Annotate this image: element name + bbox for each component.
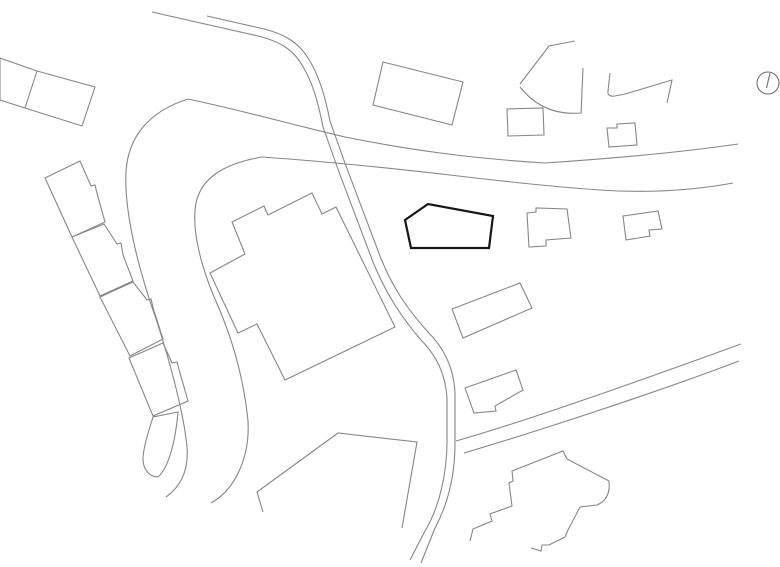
context-buildings-path [470, 451, 609, 551]
main-road [126, 99, 738, 503]
north-arrow-icon [757, 72, 779, 94]
context-buildings-path [520, 87, 580, 113]
context-buildings-path [520, 41, 575, 84]
context-buildings-path [129, 343, 188, 416]
context-buildings [0, 41, 672, 551]
main-road-path [188, 99, 738, 163]
context-buildings-path [72, 224, 133, 296]
context-buildings-path [607, 123, 637, 147]
footpath-path [152, 12, 447, 560]
site-plan-page [0, 0, 780, 567]
main-road-path [195, 157, 262, 503]
context-buildings-path [581, 68, 583, 114]
footpath-path [456, 344, 741, 441]
context-buildings-path [0, 58, 95, 126]
main-road-path [126, 99, 188, 497]
context-buildings-path [623, 211, 662, 240]
footpath [152, 12, 741, 563]
context-buildings-path [608, 73, 672, 103]
context-buildings-path [452, 283, 532, 338]
parcel-boundary-path [257, 433, 417, 528]
context-buildings-path [25, 71, 37, 108]
context-buildings-path [373, 62, 463, 125]
project-building [405, 204, 493, 248]
project-building-path [405, 204, 493, 248]
footpath-path [207, 16, 455, 563]
context-buildings-path [100, 282, 163, 356]
site-plan-drawing [0, 0, 780, 567]
main-road-path [262, 157, 733, 191]
context-buildings-path [143, 412, 178, 477]
footpath-path [464, 361, 739, 453]
parcel-boundary [257, 433, 417, 528]
context-buildings-path [527, 208, 571, 247]
north-arrow-icon-path [767, 73, 771, 88]
context-buildings-path [465, 370, 523, 413]
context-buildings-path [45, 161, 105, 237]
context-buildings-path [507, 108, 544, 136]
